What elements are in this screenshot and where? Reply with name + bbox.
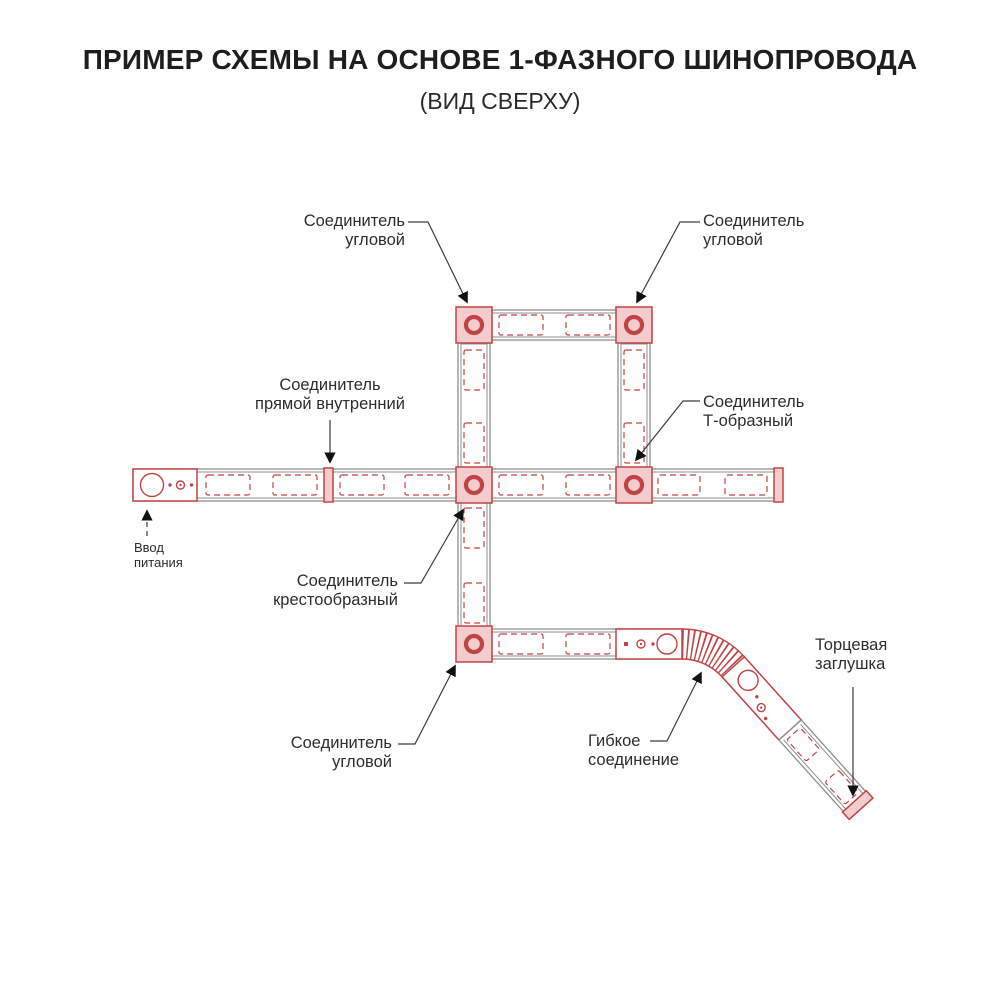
flex-outlet-section <box>722 657 801 740</box>
leader-corner-bottom <box>398 666 455 744</box>
middle-track-end-cap <box>774 468 783 502</box>
label-flexible-connection: Гибкое соединение <box>588 732 679 770</box>
label-straight-internal-connector: Соединитель прямой внутренний <box>255 376 405 414</box>
flex-inlet-section <box>616 629 682 659</box>
cross-connector <box>456 467 492 503</box>
leader-corner-top-right <box>637 222 700 302</box>
label-corner-connector-top-right: Соединитель угловой <box>703 212 804 250</box>
t-connector <box>616 467 652 503</box>
corner-connector-top-left <box>456 307 492 343</box>
diagram-page: ПРИМЕР СХЕМЫ НА ОСНОВЕ 1-ФАЗНОГО ШИНОПРО… <box>0 0 1000 1000</box>
lower-vertical-track <box>458 500 490 630</box>
diagonal-track-run <box>721 656 873 819</box>
power-feed-box <box>133 469 197 501</box>
corner-connector-top-right <box>616 307 652 343</box>
straight-internal-connector <box>324 468 333 502</box>
label-end-cap: Торцевая заглушка <box>815 636 887 674</box>
leader-flexible <box>650 673 701 741</box>
left-vertical-track <box>458 341 490 470</box>
label-corner-connector-top-left: Соединитель угловой <box>304 212 405 250</box>
corner-connector-bottom <box>456 626 492 662</box>
label-corner-connector-bottom: Соединитель угловой <box>291 734 392 772</box>
leader-lines <box>147 222 853 795</box>
label-cross-connector: Соединитель крестообразный <box>273 572 398 610</box>
leader-cross-connector <box>404 510 463 583</box>
track-layout-drawing <box>0 0 1000 1000</box>
label-t-connector: Соединитель Т-образный <box>703 393 804 431</box>
label-power-input: Ввод питания <box>134 540 183 570</box>
right-vertical-track <box>618 341 650 470</box>
leader-corner-top-left <box>408 222 467 302</box>
